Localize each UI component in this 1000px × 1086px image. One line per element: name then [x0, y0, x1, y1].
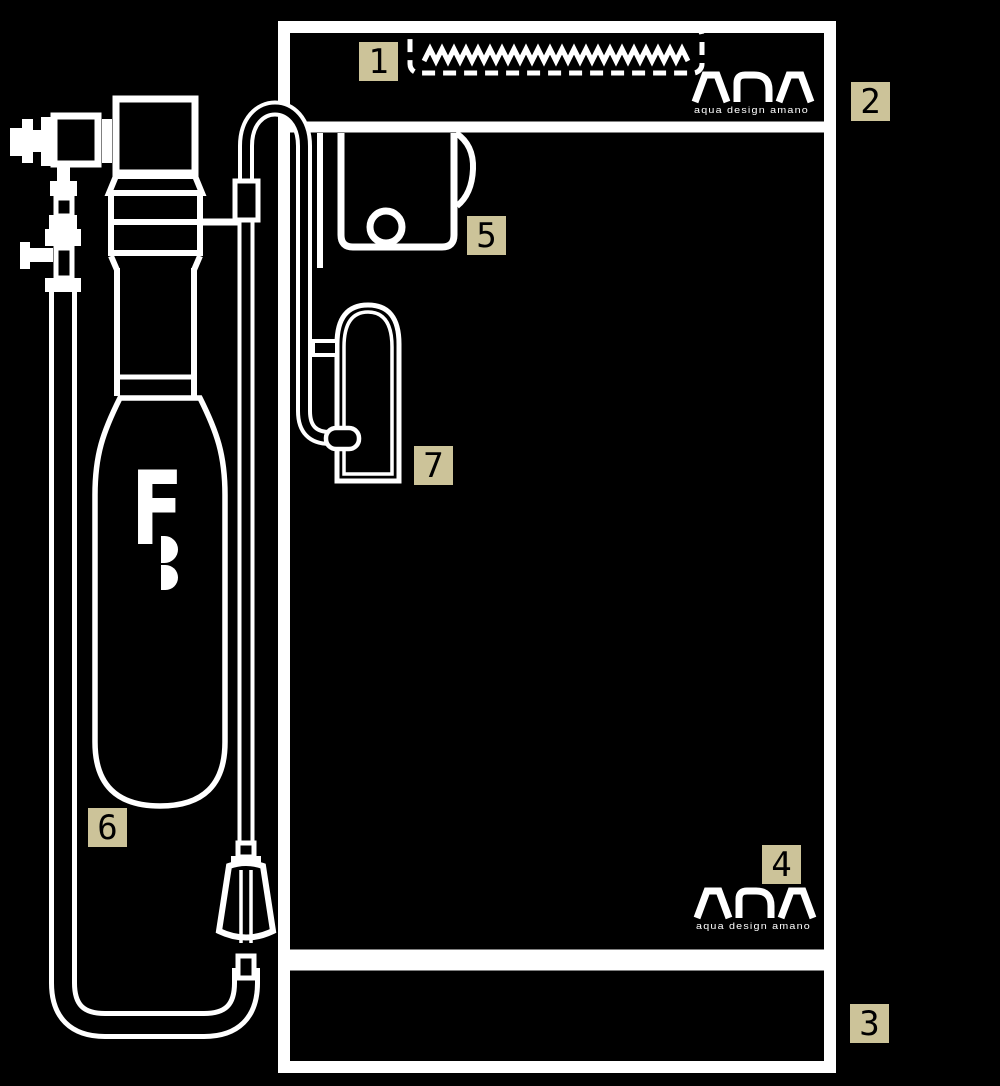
callout-4: 4	[762, 845, 801, 884]
check-valve-cone	[219, 863, 273, 938]
callout-3: 3	[850, 1004, 889, 1043]
ada-logo-subtext: aqua design amano	[696, 921, 811, 931]
light-fixture	[410, 27, 702, 73]
check-valve	[219, 843, 273, 978]
tube-holder	[320, 133, 473, 268]
callout-1: 1	[359, 42, 398, 81]
holder-plate	[341, 133, 454, 247]
diagram-stage: aqua design amano aqua design amano	[0, 0, 1000, 1086]
diffuser-inlet	[326, 428, 359, 449]
stopcock-body	[56, 248, 72, 278]
callout-5: 5	[467, 216, 506, 255]
valve-pipe-upper	[56, 198, 72, 216]
tube-clip-stub	[313, 341, 337, 355]
ada-logo-bottom: aqua design amano	[696, 891, 813, 931]
co2-diffuser	[337, 305, 399, 481]
holder-hook	[456, 133, 473, 206]
ada-logo-subtext: aqua design amano	[694, 105, 809, 115]
light-fixture-zigzag	[424, 49, 688, 61]
callout-6: 6	[88, 808, 127, 847]
check-valve-top-fitting	[238, 843, 254, 857]
co2-tube-to-diffuser	[246, 109, 344, 439]
tube-junction-connector	[235, 181, 258, 220]
regulator-taper	[111, 256, 200, 270]
regulator-top-box	[116, 99, 195, 173]
ada-wordmark	[697, 891, 813, 918]
valve-assembly-bodies	[54, 116, 98, 278]
callout-7: 7	[414, 446, 453, 485]
co2-regulator-unit	[108, 99, 238, 396]
ada-logo-top: aqua design amano	[694, 75, 811, 115]
solenoid-body	[54, 116, 98, 164]
check-valve-bottom-fitting	[238, 956, 254, 978]
ada-wordmark	[695, 75, 811, 102]
callout-2: 2	[851, 82, 890, 121]
